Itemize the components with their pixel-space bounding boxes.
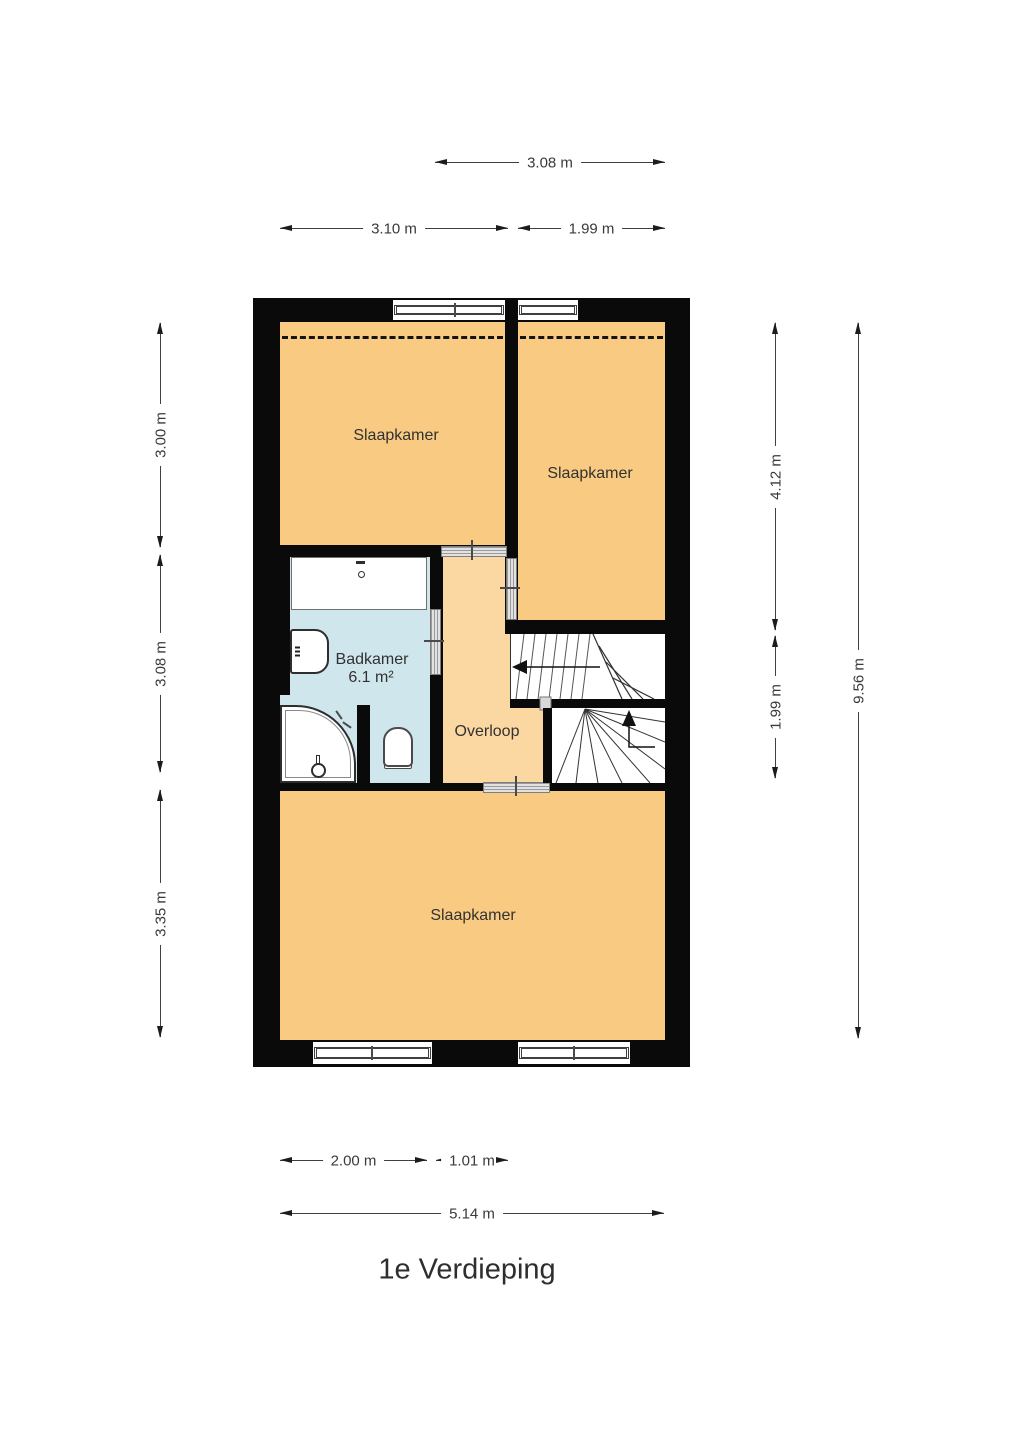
label-bathroom-area: 6.1 m² xyxy=(348,669,393,687)
dimension-label: 4.12 m xyxy=(768,446,785,508)
door-bathroom xyxy=(430,609,441,675)
dimension-label: 3.08 m xyxy=(153,633,170,695)
dimension-label: 2.00 m xyxy=(323,1153,385,1170)
label-bedroom-top-right: Slaapkamer xyxy=(547,465,632,483)
dimension-left-middle: 3.08 m xyxy=(160,555,161,772)
dimension-bottom-total: 5.14 m xyxy=(280,1213,664,1214)
dashed-line-bedroom-left xyxy=(282,336,503,339)
stair-separator-wall xyxy=(510,699,665,708)
washbasin-tap-icon xyxy=(295,646,300,657)
dimension-bottom-left: 2.00 m xyxy=(280,1160,427,1161)
dimension-label: 3.00 m xyxy=(153,404,170,466)
floorplan-canvas: 3.08 m 3.10 m 1.99 m 3.00 m 3.08 m 3.35 … xyxy=(0,0,1018,1440)
dashed-line-bedroom-right xyxy=(520,336,663,339)
dimension-right-inner-top: 4.12 m xyxy=(775,323,776,630)
dimension-right-total: 9.56 m xyxy=(858,323,859,1038)
window-bottom-left xyxy=(313,1042,432,1064)
dimension-label: 9.56 m xyxy=(851,650,868,712)
window-mullion xyxy=(454,303,456,317)
door-tick xyxy=(424,640,444,642)
door-bedroom-top-left xyxy=(441,546,507,557)
dimension-label: 5.14 m xyxy=(441,1206,503,1223)
dimension-upper-left: 3.10 m xyxy=(280,228,508,229)
window-mullion xyxy=(573,1046,575,1060)
room-landing-upper xyxy=(443,557,505,634)
dimension-label: 1.99 m xyxy=(768,676,785,738)
window-pane xyxy=(519,305,577,315)
wall-bottom-bedroom-top xyxy=(280,783,665,791)
door-bedroom-top-right xyxy=(506,558,517,620)
dimension-label: 1.01 m xyxy=(441,1153,503,1170)
bathtub-drain-icon xyxy=(358,571,365,578)
window-bottom-right xyxy=(518,1042,630,1064)
label-bathroom: Badkamer xyxy=(336,651,409,669)
wall-pier-bathroom-left xyxy=(280,545,290,695)
bathtub-faucet-icon xyxy=(356,561,365,564)
page-title: 1e Verdieping xyxy=(378,1254,555,1287)
label-bedroom-top-left: Slaapkamer xyxy=(353,427,438,445)
dimension-label: 3.08 m xyxy=(519,155,581,172)
window-top-left xyxy=(393,300,505,320)
dimension-top-width: 3.08 m xyxy=(435,162,665,163)
stair-lower-left-wall xyxy=(543,708,552,783)
wall-bedroom-bathroom xyxy=(280,545,443,557)
dimension-label: 3.35 m xyxy=(153,883,170,945)
wall-stub-shower-toilet xyxy=(357,705,370,783)
room-landing-middle xyxy=(443,634,510,708)
shower-head-icon xyxy=(311,763,326,778)
bathtub xyxy=(291,557,427,610)
washbasin xyxy=(290,629,329,674)
toilet xyxy=(383,727,413,767)
window-top-right xyxy=(518,300,578,320)
dimension-left-top: 3.00 m xyxy=(160,323,161,547)
dimension-label: 1.99 m xyxy=(561,221,623,238)
wall-between-top-bedrooms xyxy=(505,298,518,557)
door-tick xyxy=(500,587,520,589)
wall-bedroom-right-bottom xyxy=(505,620,690,634)
window-mullion xyxy=(371,1046,373,1060)
label-landing: Overloop xyxy=(455,723,520,741)
dimension-label: 3.10 m xyxy=(363,221,425,238)
door-tick xyxy=(471,540,473,560)
dimension-right-inner-bottom: 1.99 m xyxy=(775,636,776,778)
staircase xyxy=(510,634,665,783)
dimension-left-bottom: 3.35 m xyxy=(160,790,161,1037)
window-pane xyxy=(394,305,504,315)
dimension-bottom-center: 1.01 m xyxy=(436,1160,508,1161)
label-bedroom-bottom: Slaapkamer xyxy=(430,907,515,925)
dimension-upper-right: 1.99 m xyxy=(518,228,665,229)
